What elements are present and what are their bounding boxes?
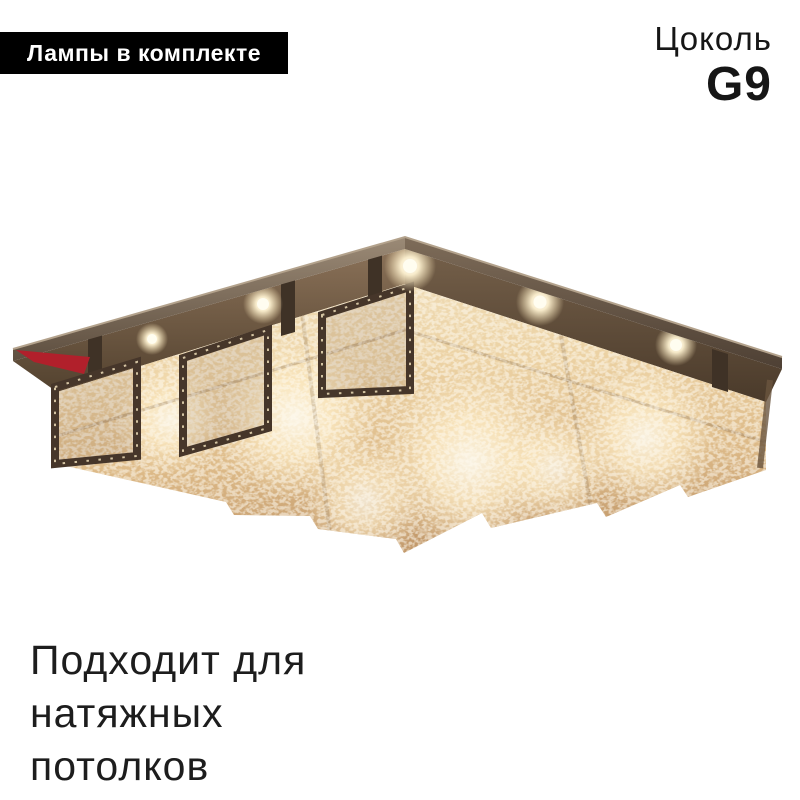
note-line-2: натяжных — [30, 687, 306, 740]
socket-type-value: G9 — [654, 60, 772, 110]
note-line-1: Подходит для — [30, 634, 306, 687]
socket-info: Цоколь G9 — [654, 20, 772, 110]
note-line-3: потолков — [30, 740, 306, 793]
socket-type-label: Цоколь — [654, 20, 772, 58]
product-card: Лампы в комплекте Цоколь G9 Подходит для… — [0, 0, 800, 800]
badge-label: Лампы в комплекте — [27, 40, 261, 67]
ceiling-note: Подходит для натяжных потолков — [30, 634, 306, 793]
included-lamps-badge: Лампы в комплекте — [0, 32, 288, 74]
